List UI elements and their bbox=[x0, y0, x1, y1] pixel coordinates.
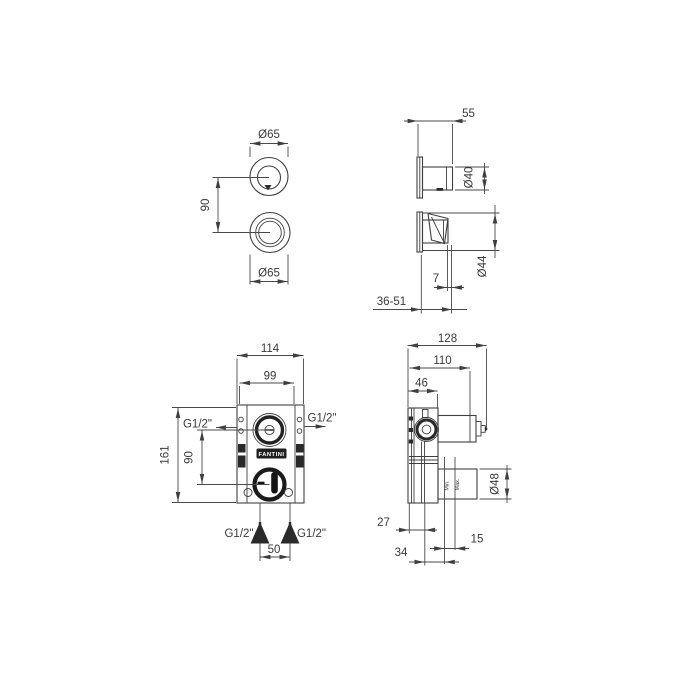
dim-label-projection: 55 bbox=[462, 108, 475, 120]
dim-label-wall-depth-range: 36-51 bbox=[377, 296, 406, 308]
dim-label-overall-width: 114 bbox=[261, 343, 280, 355]
knob-indicator-tick bbox=[437, 188, 444, 191]
label-min: Min. bbox=[445, 480, 451, 490]
dim-label-top-diameter: Ø65 bbox=[258, 129, 280, 141]
connection-label-bottom-right: G1/2" bbox=[297, 528, 326, 540]
connection-label-right: G1/2" bbox=[308, 413, 337, 425]
dim-label-outlet-diameter: Ø48 bbox=[490, 473, 502, 495]
dim-label-bottom-diameter: Ø65 bbox=[258, 268, 280, 280]
connection-label-bottom-left: G1/2" bbox=[224, 528, 253, 540]
knob-body-side bbox=[423, 167, 453, 190]
dim-label-overall-depth: 128 bbox=[438, 333, 457, 345]
top-knob-outline bbox=[250, 158, 288, 196]
technical-drawing-page: Ø65 Ø65 90 55 bbox=[0, 0, 700, 700]
dim-label-valve-centers: 90 bbox=[184, 451, 196, 464]
knob-indicator-mark bbox=[265, 185, 272, 191]
dim-label-inlet-spacing: 50 bbox=[268, 544, 281, 556]
view-handles-front: Ø65 Ø65 90 bbox=[200, 129, 290, 285]
lever-handle bbox=[428, 214, 448, 244]
dim-label-plate-thickness: 7 bbox=[433, 273, 439, 285]
dim-label-knob-diameter: Ø40 bbox=[464, 167, 476, 189]
dim-label-mid-depth: 110 bbox=[433, 355, 451, 367]
view-valve-side: Min. Max. Ø48 128 110 46 27 bbox=[377, 333, 511, 566]
lower-valve-lever bbox=[271, 472, 278, 494]
dim-label-lever-diameter: Ø44 bbox=[477, 255, 489, 277]
brand-logo-text: FANTINI bbox=[258, 452, 284, 458]
screw-hole-left bbox=[244, 489, 252, 497]
screw-hole-right bbox=[285, 489, 293, 497]
dim-label-back-offset: 27 bbox=[377, 517, 390, 529]
dim-label-handle-centers: 90 bbox=[200, 199, 212, 212]
view-valve-front: FANTINI 114 99 161 90 G1/ bbox=[160, 343, 337, 561]
side-clip-left2 bbox=[238, 456, 246, 468]
label-max: Max. bbox=[455, 479, 461, 491]
view-handles-side: 55 Ø40 Ø44 bbox=[373, 108, 500, 314]
lever-base-side bbox=[423, 220, 449, 243]
cartridge-stem bbox=[423, 410, 429, 418]
fantini-mixer-dimension-drawing: Ø65 Ø65 90 55 bbox=[0, 0, 700, 700]
side-clip-right bbox=[296, 444, 304, 453]
dim-label-body-depth: 46 bbox=[415, 378, 428, 390]
dim-label-mid-offset: 34 bbox=[395, 547, 408, 559]
dim-label-body-width: 99 bbox=[264, 371, 277, 383]
side-clip-left bbox=[238, 444, 246, 453]
dim-label-front-offset: 15 bbox=[471, 534, 484, 546]
side-clip-right2 bbox=[296, 456, 304, 468]
dim-label-overall-height: 161 bbox=[160, 445, 172, 464]
connection-label-left: G1/2" bbox=[183, 419, 212, 431]
